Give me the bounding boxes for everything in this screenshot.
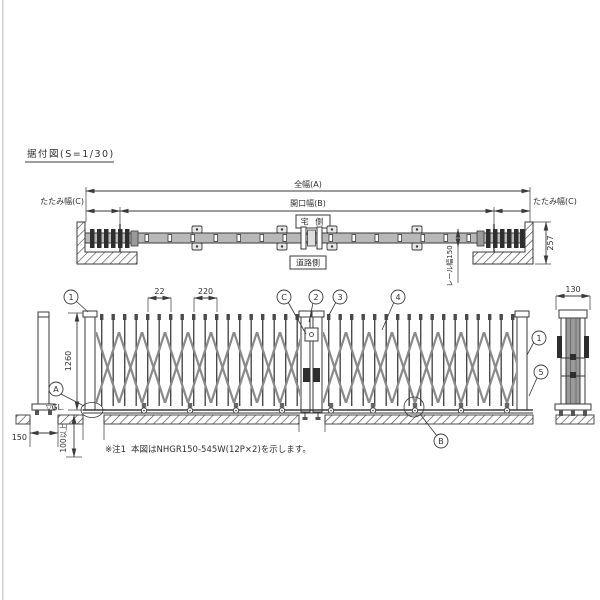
gate-post-right	[515, 311, 529, 410]
title-block: 据付図(S=1/30)	[25, 148, 115, 162]
ground-level-label: ▽GL.	[46, 403, 64, 412]
dim-footing-width-label: 150	[12, 433, 27, 442]
leaf-right-lattice	[323, 332, 516, 403]
callout-1-right: 1	[527, 331, 546, 355]
callout-3: 3	[329, 290, 347, 315]
dim-embed-depth-label: 100以上	[59, 423, 68, 453]
center-handle-left	[303, 368, 310, 382]
callout-A-text: A	[53, 385, 59, 394]
callout-3-text: 3	[337, 293, 342, 302]
page-edge-line	[2, 0, 4, 600]
note-block: ※注1 本図はNHGR150-545W(12P×2)を示します。	[105, 444, 311, 455]
dim-height-label: 1260	[64, 351, 73, 371]
callout-5-text: 5	[538, 368, 543, 377]
callout-1-left-text: 1	[68, 293, 73, 302]
dim-height-1260: 1260	[64, 313, 84, 410]
dim-footing-width: 150	[12, 433, 58, 442]
gate-post-left	[83, 311, 97, 410]
dim-picket-gap-22: 22	[148, 287, 171, 312]
callout-1-right-text: 1	[536, 334, 541, 343]
dim-rail-width-label: レール幅150	[445, 245, 454, 286]
house-side-text: 宅 側	[301, 217, 326, 227]
folded-stack-left	[90, 229, 138, 248]
plan-view: 全幅(A) 開口幅(B) たたみ幅(C) たたみ幅(C) 宅 側	[40, 179, 577, 287]
folded-stack-right	[477, 229, 525, 248]
post-side-view-left	[32, 312, 55, 415]
dim-depth-257: 257	[533, 222, 555, 264]
folded-gate-side-view: 130	[555, 285, 591, 416]
dim-fold-width-right-label: たたみ幅(C)	[533, 196, 577, 206]
note-prefix: ※注1	[105, 444, 126, 455]
dim-depth-label: 257	[546, 235, 555, 250]
note-body: 本図はNHGR150-545W(12P×2)を示します。	[131, 444, 311, 455]
road-side-label: 道路側	[290, 256, 326, 269]
callout-4-text: 4	[395, 293, 400, 302]
center-latch	[305, 328, 318, 341]
dim-opening-width-label: 開口幅(B)	[290, 198, 326, 208]
installation-drawing-page: 据付図(S=1/30) 全幅(A) 開口幅(B) たたみ幅(C) たたみ幅(C)	[0, 0, 600, 600]
center-handle-right	[313, 368, 320, 382]
page-title: 据付図(S=1/30)	[27, 148, 115, 160]
dim-fold-width-right: たたみ幅(C)	[494, 196, 577, 211]
dim-pitch-label: 220	[198, 287, 213, 296]
callout-C-text: C	[281, 293, 287, 302]
road-side-text: 道路側	[296, 258, 320, 268]
dim-fold-width-left: たたみ幅(C)	[40, 196, 120, 211]
dim-post-width-label: 130	[565, 285, 580, 294]
callout-1-left: 1	[64, 290, 88, 312]
dim-post-width-130: 130	[556, 285, 590, 310]
house-side-label: 宅 側	[296, 215, 330, 228]
leaf-left-lattice	[96, 332, 300, 403]
elevation-view: 1260	[12, 285, 594, 457]
dim-total-width-label: 全幅(A)	[294, 179, 322, 189]
callout-B-text: B	[438, 437, 444, 446]
drawing-canvas: 据付図(S=1/30) 全幅(A) 開口幅(B) たたみ幅(C) たたみ幅(C)	[0, 0, 600, 600]
dim-fold-width-left-label: たたみ幅(C)	[40, 196, 84, 206]
dim-pitch-220: 220	[194, 287, 217, 312]
callout-5: 5	[529, 365, 548, 396]
dim-picket-gap-label: 22	[154, 287, 164, 296]
callout-2-text: 2	[313, 293, 318, 302]
center-joint-plan	[301, 227, 322, 249]
center-meeting-posts	[299, 311, 324, 420]
